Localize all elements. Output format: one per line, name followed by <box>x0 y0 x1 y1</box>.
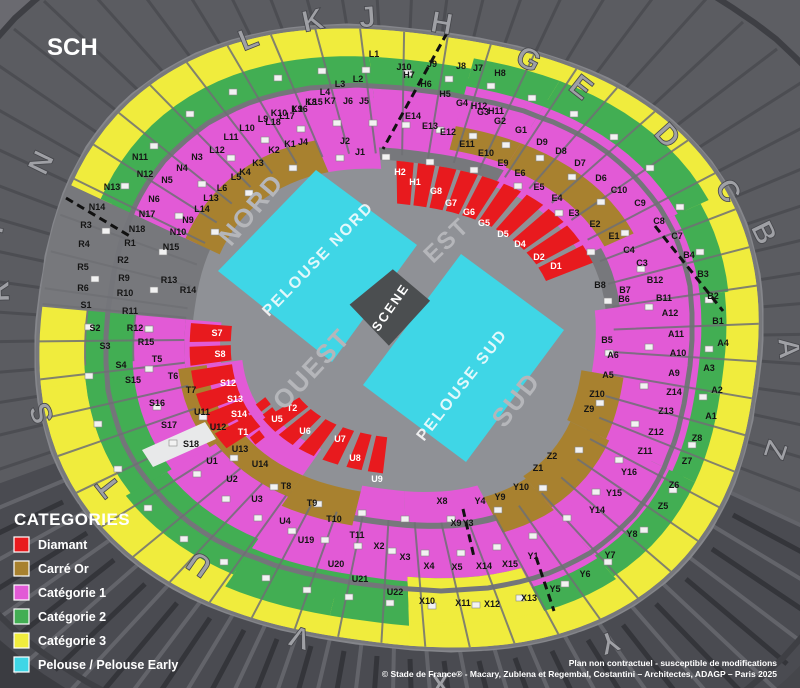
svg-text:J9: J9 <box>427 59 437 69</box>
svg-text:G4: G4 <box>456 98 468 108</box>
svg-text:L9: L9 <box>258 114 269 124</box>
svg-text:G2: G2 <box>494 116 506 126</box>
svg-text:Z12: Z12 <box>648 427 664 437</box>
svg-text:J4: J4 <box>298 137 308 147</box>
svg-text:Catégorie 1: Catégorie 1 <box>38 586 106 600</box>
svg-text:B6: B6 <box>618 294 630 304</box>
svg-text:Y15: Y15 <box>606 488 622 498</box>
svg-text:U12: U12 <box>210 422 227 432</box>
svg-text:N3: N3 <box>191 152 203 162</box>
svg-text:Z14: Z14 <box>666 387 682 397</box>
svg-text:U13: U13 <box>232 444 249 454</box>
svg-text:Y9: Y9 <box>494 492 505 502</box>
svg-text:© Stade de France® - Macary, Z: © Stade de France® - Macary, Zublena et … <box>382 669 777 679</box>
svg-text:C8: C8 <box>653 216 665 226</box>
svg-text:E2: E2 <box>589 219 600 229</box>
svg-text:Plan non contractuel - suscept: Plan non contractuel - susceptible de mo… <box>569 658 778 668</box>
svg-text:C4: C4 <box>623 245 635 255</box>
svg-text:G1: G1 <box>515 125 527 135</box>
svg-text:Y3: Y3 <box>462 518 473 528</box>
svg-text:D4: D4 <box>514 239 526 249</box>
svg-text:E4: E4 <box>551 193 562 203</box>
svg-text:N14: N14 <box>89 202 106 212</box>
svg-text:B4: B4 <box>683 250 695 260</box>
svg-text:S2: S2 <box>89 323 100 333</box>
svg-text:K2: K2 <box>268 145 280 155</box>
svg-text:U22: U22 <box>387 587 404 597</box>
svg-text:L2: L2 <box>353 74 364 84</box>
svg-text:K3: K3 <box>252 158 264 168</box>
svg-text:S3: S3 <box>99 341 110 351</box>
svg-text:X12: X12 <box>484 599 500 609</box>
svg-text:X9: X9 <box>450 518 461 528</box>
svg-text:X3: X3 <box>399 552 410 562</box>
svg-text:J5: J5 <box>359 96 369 106</box>
svg-text:Z6: Z6 <box>669 480 680 490</box>
svg-text:J7: J7 <box>473 63 483 73</box>
svg-text:H6: H6 <box>420 79 432 89</box>
svg-text:N4: N4 <box>176 163 188 173</box>
svg-text:L5: L5 <box>231 172 242 182</box>
svg-text:S4: S4 <box>115 360 126 370</box>
svg-text:D8: D8 <box>555 146 567 156</box>
svg-text:N18: N18 <box>129 224 146 234</box>
svg-text:D5: D5 <box>497 229 509 239</box>
svg-text:Z2: Z2 <box>547 451 558 461</box>
svg-text:E1: E1 <box>608 231 619 241</box>
svg-text:A6: A6 <box>607 350 619 360</box>
svg-text:N5: N5 <box>161 175 173 185</box>
svg-text:Diamant: Diamant <box>38 538 88 552</box>
svg-text:C9: C9 <box>634 198 646 208</box>
svg-text:C10: C10 <box>611 185 628 195</box>
svg-text:Z13: Z13 <box>658 406 674 416</box>
svg-text:H8: H8 <box>494 68 506 78</box>
svg-text:Y1: Y1 <box>527 551 538 561</box>
svg-text:U14: U14 <box>252 459 269 469</box>
svg-text:T1: T1 <box>238 427 249 437</box>
svg-text:H5: H5 <box>439 89 451 99</box>
svg-text:H12: H12 <box>471 101 488 111</box>
svg-text:CATEGORIES: CATEGORIES <box>14 510 130 529</box>
svg-text:Y16: Y16 <box>621 467 637 477</box>
svg-text:Catégorie 2: Catégorie 2 <box>38 610 106 624</box>
svg-text:G5: G5 <box>478 218 490 228</box>
svg-text:Y6: Y6 <box>579 569 590 579</box>
svg-text:Y14: Y14 <box>589 505 605 515</box>
svg-text:J2: J2 <box>340 136 350 146</box>
svg-text:E3: E3 <box>568 208 579 218</box>
svg-text:J: J <box>358 0 377 34</box>
svg-text:Y8: Y8 <box>626 529 637 539</box>
svg-text:Catégorie 3: Catégorie 3 <box>38 634 106 648</box>
svg-text:X11: X11 <box>455 598 471 608</box>
svg-text:S14: S14 <box>231 409 247 419</box>
svg-text:R1: R1 <box>124 238 136 248</box>
svg-text:E11: E11 <box>459 139 475 149</box>
svg-text:L12: L12 <box>209 145 225 155</box>
svg-text:U20: U20 <box>328 559 345 569</box>
svg-text:R9: R9 <box>118 273 130 283</box>
svg-text:Z8: Z8 <box>692 433 703 443</box>
svg-text:S12: S12 <box>220 378 236 388</box>
svg-text:K9: K9 <box>291 104 303 114</box>
svg-text:U4: U4 <box>279 516 291 526</box>
svg-text:A10: A10 <box>670 348 687 358</box>
svg-text:U9: U9 <box>371 474 383 484</box>
svg-text:B2: B2 <box>707 291 719 301</box>
svg-text:X14: X14 <box>476 561 492 571</box>
svg-text:Z10: Z10 <box>589 389 605 399</box>
svg-text:E12: E12 <box>440 127 456 137</box>
svg-text:X13: X13 <box>521 593 537 603</box>
svg-text:B3: B3 <box>697 269 709 279</box>
svg-text:R3: R3 <box>80 220 92 230</box>
svg-text:S18: S18 <box>183 439 199 449</box>
svg-text:K7: K7 <box>324 96 336 106</box>
svg-text:U2: U2 <box>226 474 238 484</box>
svg-text:G8: G8 <box>430 186 442 196</box>
svg-text:D9: D9 <box>536 137 548 147</box>
svg-text:Z9: Z9 <box>584 404 595 414</box>
svg-text:L6: L6 <box>217 183 228 193</box>
svg-text:H7: H7 <box>403 70 415 80</box>
svg-text:K10: K10 <box>271 108 288 118</box>
svg-text:B11: B11 <box>656 293 672 303</box>
svg-text:R13: R13 <box>161 275 178 285</box>
svg-text:U8: U8 <box>349 453 361 463</box>
svg-text:R6: R6 <box>77 283 89 293</box>
svg-text:U7: U7 <box>334 434 346 444</box>
svg-text:K1: K1 <box>284 139 296 149</box>
svg-text:S1: S1 <box>80 300 91 310</box>
svg-text:A4: A4 <box>717 338 729 348</box>
svg-text:E14: E14 <box>405 111 421 121</box>
svg-text:N13: N13 <box>104 182 121 192</box>
svg-text:J6: J6 <box>343 96 353 106</box>
svg-text:T7: T7 <box>186 385 197 395</box>
svg-text:S17: S17 <box>161 420 177 430</box>
svg-text:T9: T9 <box>307 498 318 508</box>
svg-text:H11: H11 <box>488 106 504 116</box>
svg-text:T10: T10 <box>326 514 342 524</box>
svg-text:R12: R12 <box>127 323 144 333</box>
svg-text:J8: J8 <box>456 61 466 71</box>
svg-text:A5: A5 <box>602 370 614 380</box>
svg-text:L10: L10 <box>239 123 255 133</box>
svg-text:U3: U3 <box>251 494 263 504</box>
svg-text:D1: D1 <box>550 261 562 271</box>
svg-text:X8: X8 <box>436 496 447 506</box>
svg-text:C7: C7 <box>671 231 683 241</box>
svg-text:U1: U1 <box>206 456 218 466</box>
svg-text:A9: A9 <box>668 368 680 378</box>
svg-text:A1: A1 <box>705 411 717 421</box>
svg-text:U11: U11 <box>194 407 210 417</box>
svg-text:Y7: Y7 <box>604 550 615 560</box>
svg-text:E5: E5 <box>533 182 544 192</box>
svg-text:U19: U19 <box>298 535 315 545</box>
svg-text:L11: L11 <box>223 132 238 142</box>
svg-text:G6: G6 <box>463 207 475 217</box>
svg-text:N15: N15 <box>163 242 180 252</box>
svg-text:R10: R10 <box>117 288 134 298</box>
svg-text:N11: N11 <box>132 152 148 162</box>
svg-text:A11: A11 <box>668 329 684 339</box>
svg-text:E13: E13 <box>422 121 438 131</box>
svg-text:U6: U6 <box>299 426 311 436</box>
svg-text:K8: K8 <box>305 97 317 107</box>
svg-text:C3: C3 <box>636 258 648 268</box>
svg-text:X10: X10 <box>419 596 435 606</box>
svg-text:B12: B12 <box>647 275 664 285</box>
svg-text:S16: S16 <box>149 398 165 408</box>
svg-text:S15: S15 <box>125 375 141 385</box>
svg-text:T11: T11 <box>349 530 364 540</box>
svg-text:Carré Or: Carré Or <box>38 562 89 576</box>
svg-text:R: R <box>0 280 16 303</box>
svg-text:N6: N6 <box>148 194 160 204</box>
svg-text:D2: D2 <box>533 252 545 262</box>
svg-text:R14: R14 <box>180 285 197 295</box>
svg-text:E10: E10 <box>478 148 494 158</box>
svg-text:N17: N17 <box>139 209 156 219</box>
svg-text:J1: J1 <box>355 147 365 157</box>
svg-text:Z11: Z11 <box>637 446 652 456</box>
svg-text:E6: E6 <box>514 168 525 178</box>
svg-text:L14: L14 <box>194 204 210 214</box>
svg-text:B8: B8 <box>594 280 606 290</box>
svg-text:SCH: SCH <box>47 34 98 61</box>
svg-text:S13: S13 <box>227 394 243 404</box>
svg-text:D7: D7 <box>574 158 586 168</box>
svg-text:B5: B5 <box>601 335 613 345</box>
svg-text:X2: X2 <box>373 541 384 551</box>
svg-text:R4: R4 <box>78 239 90 249</box>
svg-text:A3: A3 <box>703 363 715 373</box>
svg-text:L3: L3 <box>335 79 346 89</box>
svg-text:Pelouse / Pelouse Early: Pelouse / Pelouse Early <box>38 658 178 672</box>
svg-text:A2: A2 <box>711 385 723 395</box>
svg-text:Y5: Y5 <box>549 584 560 594</box>
svg-text:Z1: Z1 <box>533 463 544 473</box>
svg-text:X5: X5 <box>451 562 462 572</box>
svg-text:R15: R15 <box>138 337 155 347</box>
svg-text:T8: T8 <box>281 481 292 491</box>
svg-text:N10: N10 <box>170 227 187 237</box>
svg-text:R11: R11 <box>122 306 138 316</box>
svg-text:S7: S7 <box>211 328 222 338</box>
svg-text:U5: U5 <box>271 414 283 424</box>
svg-text:R5: R5 <box>77 262 89 272</box>
svg-text:N9: N9 <box>182 215 194 225</box>
svg-text:A12: A12 <box>662 308 679 318</box>
svg-text:L13: L13 <box>203 193 219 203</box>
svg-text:E9: E9 <box>497 158 508 168</box>
svg-text:X15: X15 <box>502 559 518 569</box>
svg-text:G7: G7 <box>445 198 457 208</box>
svg-text:T5: T5 <box>152 354 163 364</box>
svg-text:H2: H2 <box>394 167 406 177</box>
svg-text:T6: T6 <box>168 371 179 381</box>
svg-text:R2: R2 <box>117 255 129 265</box>
svg-text:Z7: Z7 <box>682 456 693 466</box>
svg-text:Y10: Y10 <box>513 482 529 492</box>
svg-text:A: A <box>771 336 800 360</box>
svg-text:B1: B1 <box>712 316 724 326</box>
svg-text:X4: X4 <box>423 561 434 571</box>
svg-text:Y4: Y4 <box>474 496 485 506</box>
svg-text:N12: N12 <box>137 169 154 179</box>
svg-text:L1: L1 <box>369 49 380 59</box>
svg-text:H1: H1 <box>409 177 421 187</box>
svg-text:D6: D6 <box>595 173 607 183</box>
svg-text:Z5: Z5 <box>658 501 669 511</box>
svg-text:S8: S8 <box>214 349 225 359</box>
svg-text:U21: U21 <box>352 574 369 584</box>
